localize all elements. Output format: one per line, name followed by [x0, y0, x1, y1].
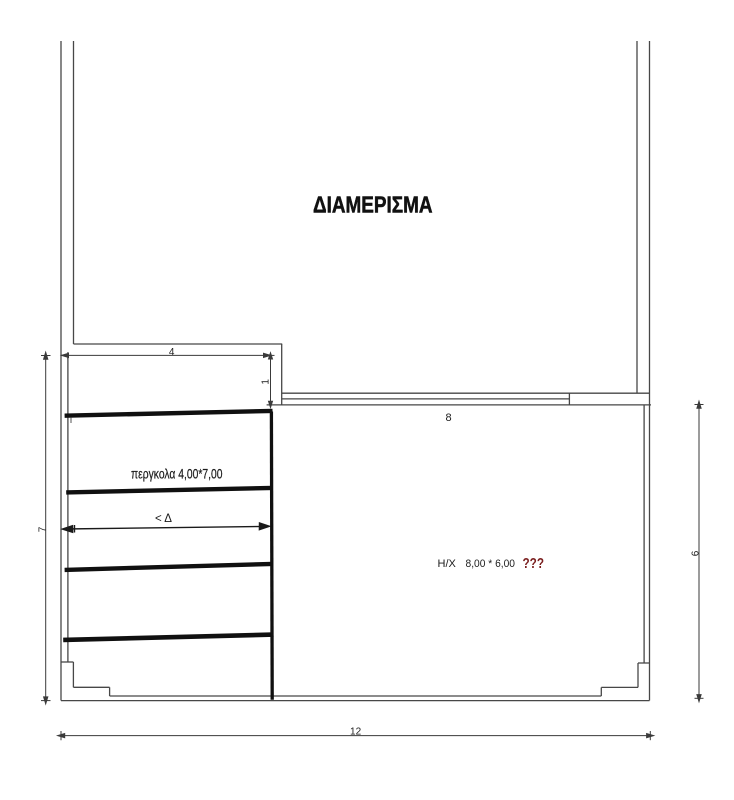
- svg-text:12: 12: [350, 727, 362, 738]
- svg-text:7: 7: [38, 526, 49, 532]
- svg-text:< Δ: < Δ: [155, 513, 172, 525]
- svg-text:???: ???: [523, 555, 545, 572]
- svg-text:4: 4: [169, 347, 175, 358]
- svg-text:8,00 * 6,00: 8,00 * 6,00: [466, 558, 516, 570]
- svg-text:1: 1: [261, 379, 272, 385]
- svg-text:ΔΙΑΜΕΡΙΣΜΑ: ΔΙΑΜΕΡΙΣΜΑ: [313, 191, 433, 217]
- svg-text:Η/Χ: Η/Χ: [438, 558, 457, 570]
- svg-text:8: 8: [445, 412, 451, 424]
- svg-text:6: 6: [691, 550, 702, 556]
- svg-text:περγκολα 4,00*7,00: περγκολα 4,00*7,00: [131, 467, 223, 482]
